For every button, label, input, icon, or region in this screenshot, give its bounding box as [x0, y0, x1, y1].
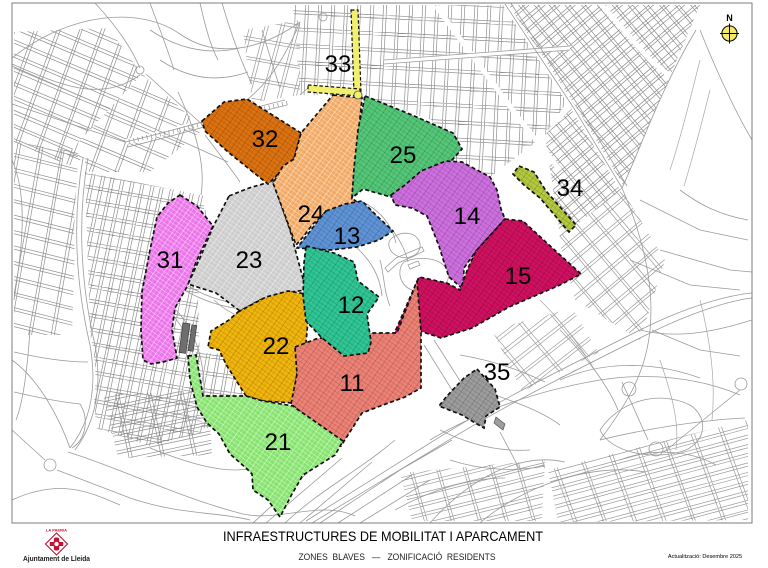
svg-text:35: 35: [484, 359, 511, 386]
svg-text:34: 34: [557, 175, 584, 202]
svg-text:23: 23: [236, 247, 263, 274]
svg-text:LA PAERIA: LA PAERIA: [46, 528, 67, 533]
svg-text:14: 14: [454, 203, 481, 230]
svg-text:32: 32: [252, 126, 279, 153]
svg-text:13: 13: [334, 223, 361, 250]
svg-text:21: 21: [265, 429, 292, 456]
svg-text:Actualització: Desembre 2025: Actualització: Desembre 2025: [668, 554, 742, 560]
svg-text:15: 15: [505, 263, 532, 290]
svg-text:22: 22: [263, 333, 290, 360]
svg-text:Ajuntament de Lleida: Ajuntament de Lleida: [23, 554, 91, 563]
svg-text:25: 25: [390, 142, 417, 169]
svg-text:INFRAESTRUCTURES DE MOBILITAT: INFRAESTRUCTURES DE MOBILITAT I APARCAME…: [223, 528, 543, 544]
svg-text:33: 33: [325, 51, 352, 78]
svg-text:11: 11: [340, 370, 365, 397]
svg-text:31: 31: [157, 247, 184, 274]
svg-text:12: 12: [338, 292, 365, 319]
svg-text:ZONES BLAVES — ZONIFICACI: ZONES BLAVES — ZONIFICACIÓ RESIDENTS: [299, 552, 496, 562]
svg-text:N: N: [726, 13, 733, 23]
